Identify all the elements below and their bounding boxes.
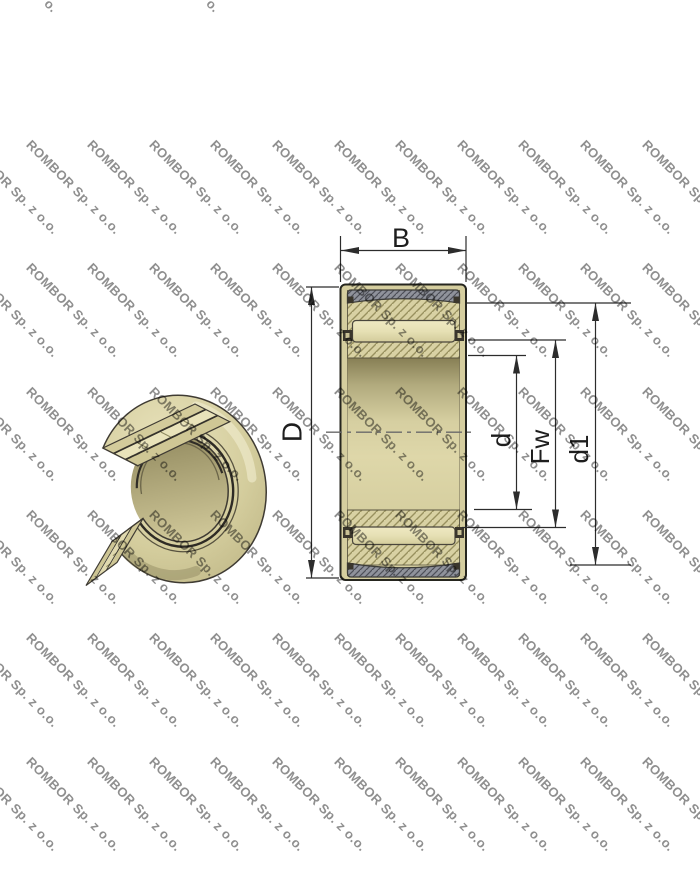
dimension-d — [468, 356, 532, 510]
dim-label-B: B — [392, 223, 410, 253]
dim-label-D: D — [276, 422, 307, 442]
roller-top — [353, 321, 456, 343]
bearing-3d-view — [86, 395, 266, 585]
band-notch — [348, 297, 354, 304]
band-notch — [454, 563, 460, 570]
roller-bottom — [353, 527, 456, 545]
band-notch — [454, 297, 460, 304]
dim-label-Fw: Fw — [525, 429, 555, 464]
dim-label-d: d — [486, 433, 516, 447]
technical-drawing: B D d Fw d1 — [0, 0, 700, 869]
canvas: B D d Fw d1 ROMBOR Sp. z o.o.ROMBOR Sp. … — [0, 0, 700, 869]
bore-surface — [348, 358, 460, 510]
dim-label-d1: d1 — [564, 435, 594, 464]
cross-section-view — [326, 285, 476, 581]
band-notch — [348, 563, 354, 570]
